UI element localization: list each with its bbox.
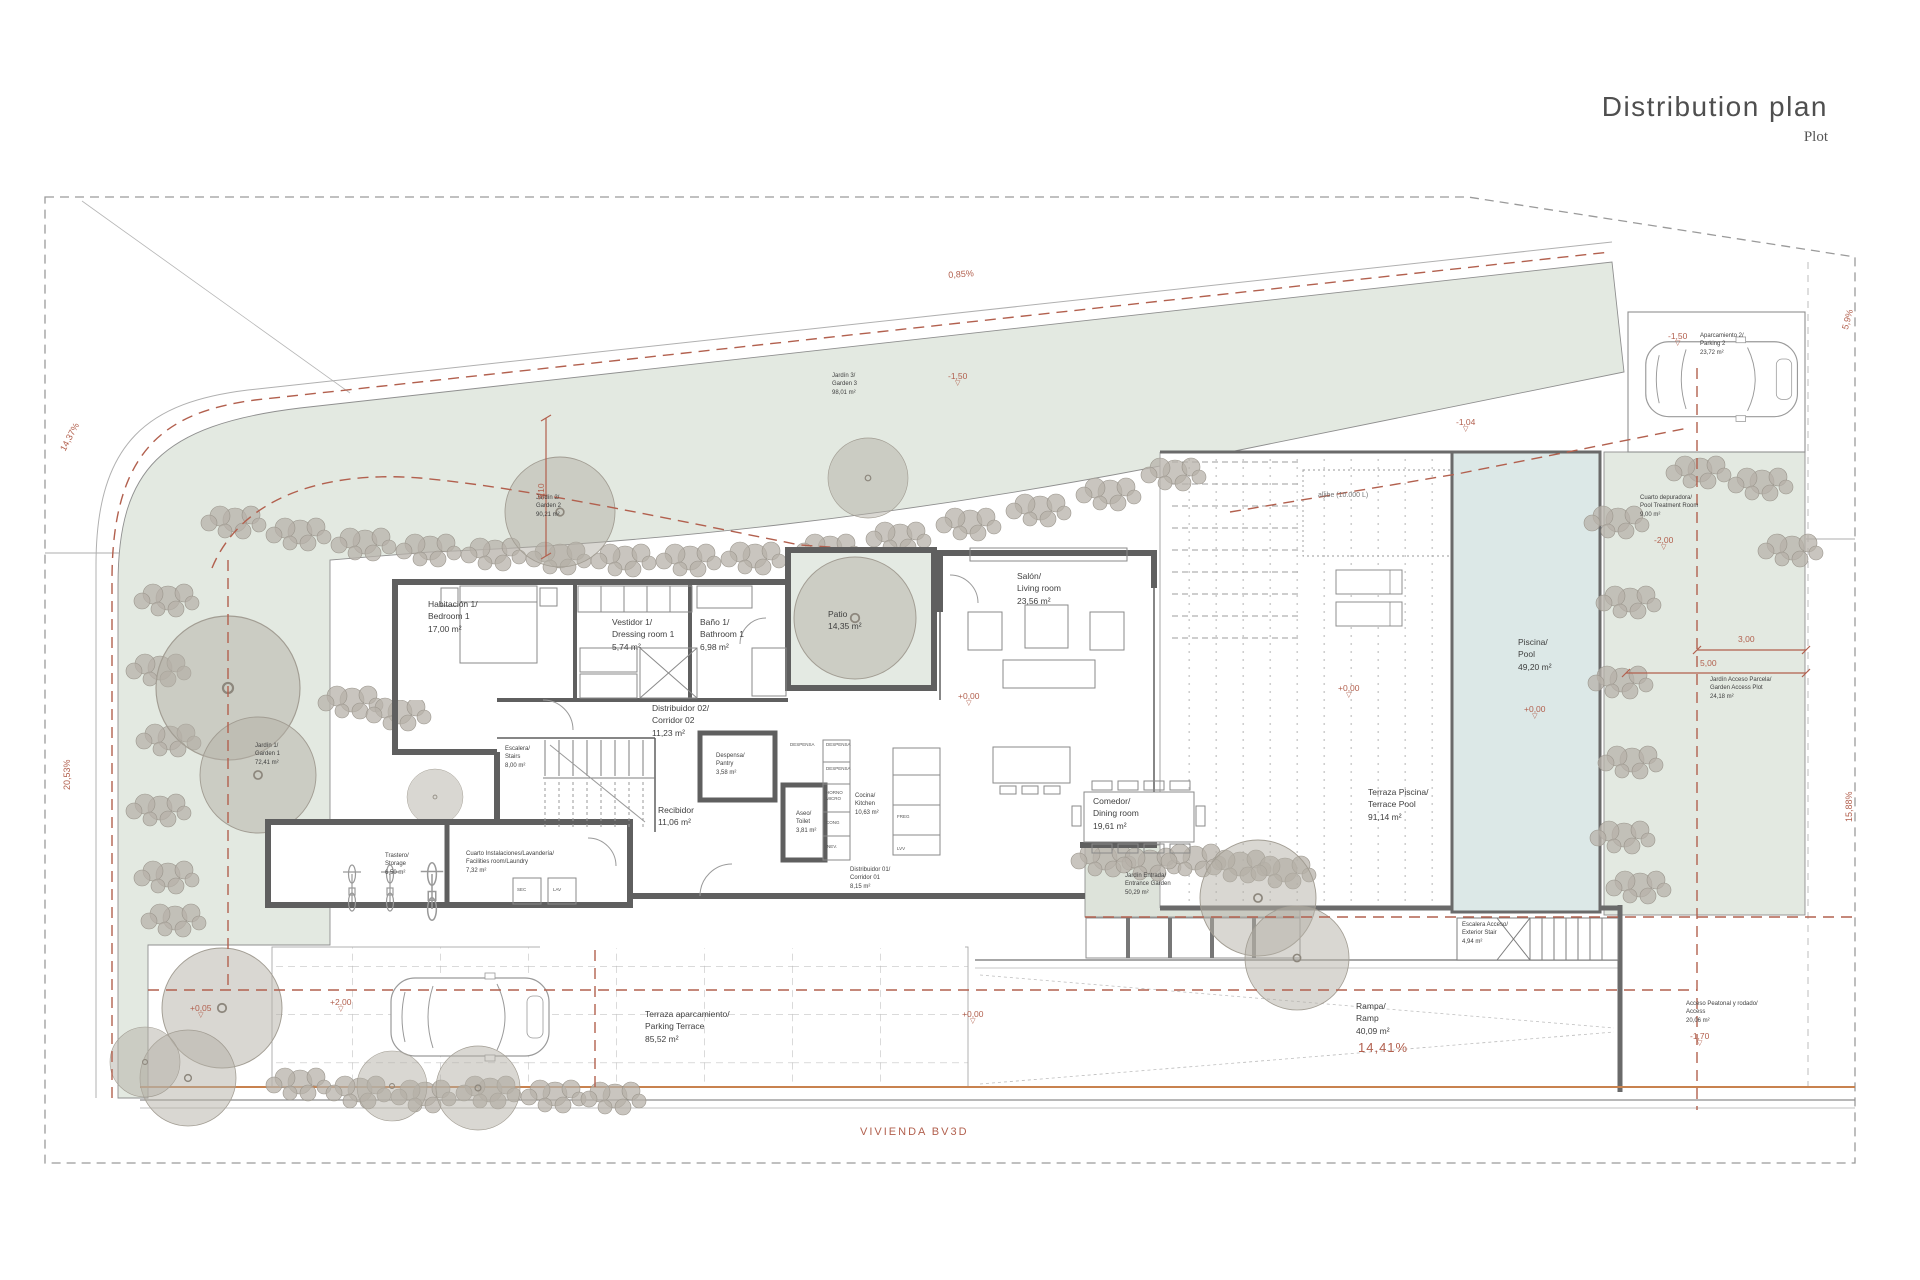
- slope-right-lower: 15,88%: [1844, 791, 1854, 822]
- micro-label: MICRO: [826, 796, 841, 801]
- page-title: Distribution plan: [1602, 92, 1828, 123]
- room-label-terraza-piscina: Terraza Piscina/Terrace Pool91,14 m²: [1368, 786, 1428, 823]
- pantry-cab-label-2: DESPENSA: [826, 742, 851, 747]
- level-marker-driveway: +2,00▽: [330, 998, 352, 1013]
- level-triangle-icon: ▽: [958, 701, 980, 707]
- room-label-depuradora: Cuarto depuradora/Pool Treatment Room9,0…: [1640, 494, 1698, 519]
- level-marker-living: +0,00▽: [958, 692, 980, 707]
- room-label-terraza-aparcamiento: Terraza aparcamiento/Parking Terrace85,5…: [645, 1008, 730, 1045]
- slope-ramp: 14,41%: [1358, 1040, 1408, 1055]
- slope-left-lower: 20,53%: [62, 759, 72, 790]
- washer-label: LAV: [553, 887, 561, 892]
- room-label-distribuidor02: Distribuidor 02/Corridor 0211,23 m²: [652, 702, 709, 739]
- room-label-patio: Patio14,35 m²: [828, 608, 862, 633]
- level-marker-path: -1,04▽: [1456, 418, 1475, 433]
- room-label-piscina: Piscina/Pool49,20 m²: [1518, 636, 1552, 673]
- room-label-jardin3: Jardín 3/Garden 398,01 m²: [832, 372, 857, 397]
- page-subtitle: Plot: [1602, 129, 1828, 146]
- level-triangle-icon: ▽: [962, 1019, 984, 1025]
- level-triangle-icon: ▽: [1524, 714, 1546, 720]
- level-triangle-icon: ▽: [1668, 341, 1687, 347]
- level-triangle-icon: ▽: [190, 1013, 212, 1019]
- room-label-bano1: Baño 1/Bathroom 16,98 m²: [700, 616, 744, 653]
- room-label-salon: Salón/Living room23,56 m²: [1017, 570, 1061, 607]
- level-marker-terrace: +0,00▽: [1338, 684, 1360, 699]
- level-marker-pool-room: -2,00▽: [1654, 536, 1673, 551]
- room-label-rampa: Rampa/Ramp40,09 m²: [1356, 1000, 1390, 1037]
- dim-500: 5,00: [1700, 658, 1717, 668]
- freezer-label: CONG: [826, 820, 840, 825]
- site-label: VIVIENDA BV3D: [860, 1126, 969, 1138]
- room-label-instalaciones: Cuarto Instalaciones/Lavandería/Faciliti…: [466, 850, 554, 875]
- level-marker-parking2: -1,50▽: [1668, 332, 1687, 347]
- level-marker-garden-west: +0,05▽: [190, 1004, 212, 1019]
- room-label-jardin-acceso: Jardín Acceso Parcela/Garden Access Plot…: [1710, 676, 1771, 701]
- pool: [1452, 452, 1600, 912]
- level-triangle-icon: ▽: [330, 1007, 352, 1013]
- level-triangle-icon: ▽: [1690, 1041, 1709, 1047]
- room-label-aseo: Aseo/Toilet3,81 m²: [796, 810, 816, 835]
- room-label-trastero: Trastero/Storage6,50 m²: [385, 852, 409, 877]
- room-label-cocina: Cocina/Kitchen10,63 m²: [855, 792, 879, 817]
- pantry-cab-label-3: DESPENSA: [826, 766, 851, 771]
- dim-310: 3,10: [536, 483, 546, 500]
- water-tank-label: aljibe (10.000 L): [1318, 492, 1368, 499]
- pantry-cab-label-1: DESPENSA: [790, 742, 815, 747]
- site-plan-drawing: [0, 0, 1920, 1280]
- slope-top: 0,85%: [948, 268, 974, 280]
- room-label-comedor: Comedor/Dining room19,61 m²: [1093, 795, 1139, 832]
- dishwasher-label: LVV: [897, 846, 905, 851]
- sink-label: FREG: [897, 814, 910, 819]
- room-label-distribuidor01: Distribuidor 01/Corridor 018,15 m²: [850, 866, 890, 891]
- room-label-bedroom1: Habitación 1/Bedroom 117,00 m²: [428, 598, 478, 635]
- room-label-aparcamiento2: Aparcamiento 2/Parking 223,72 m²: [1700, 332, 1744, 357]
- oven-label: HORNO: [826, 790, 843, 795]
- room-label-jardin-entrada: Jardín Entrada/Entrance Garden50,29 m²: [1125, 872, 1171, 897]
- dryer-label: SEC: [517, 887, 526, 892]
- level-marker-access: -1,70▽: [1690, 1032, 1709, 1047]
- dim-300: 3,00: [1738, 634, 1755, 644]
- level-marker-garden3: -1,50▽: [948, 372, 967, 387]
- room-label-vestidor1: Vestidor 1/Dressing room 15,74 m²: [612, 616, 674, 653]
- level-triangle-icon: ▽: [1456, 427, 1475, 433]
- room-label-despensa: Despensa/Pantry3,58 m²: [716, 752, 745, 777]
- room-label-escalera-acceso: Escalera Acceso/Exterior Stair4,94 m²: [1462, 921, 1508, 946]
- level-triangle-icon: ▽: [1338, 693, 1360, 699]
- fridge-label: NEV.: [827, 844, 837, 849]
- room-label-jardin1: Jardín 1/Garden 172,41 m²: [255, 742, 280, 767]
- room-label-recibidor: Recibidor11,06 m²: [658, 804, 694, 829]
- room-label-escalera: Escalera/Stairs8,00 m²: [505, 745, 530, 770]
- distribution-plan-page: Distribution plan Plot Habitación 1/Bedr…: [0, 0, 1920, 1280]
- level-marker-pool: +0,00▽: [1524, 705, 1546, 720]
- level-triangle-icon: ▽: [948, 381, 967, 387]
- title-block: Distribution plan Plot: [1602, 92, 1828, 146]
- level-triangle-icon: ▽: [1654, 545, 1673, 551]
- level-marker-parking-terrace: +0,00▽: [962, 1010, 984, 1025]
- room-label-acceso: Acceso Peatonal y rodado/Access20,06 m²: [1686, 1000, 1758, 1025]
